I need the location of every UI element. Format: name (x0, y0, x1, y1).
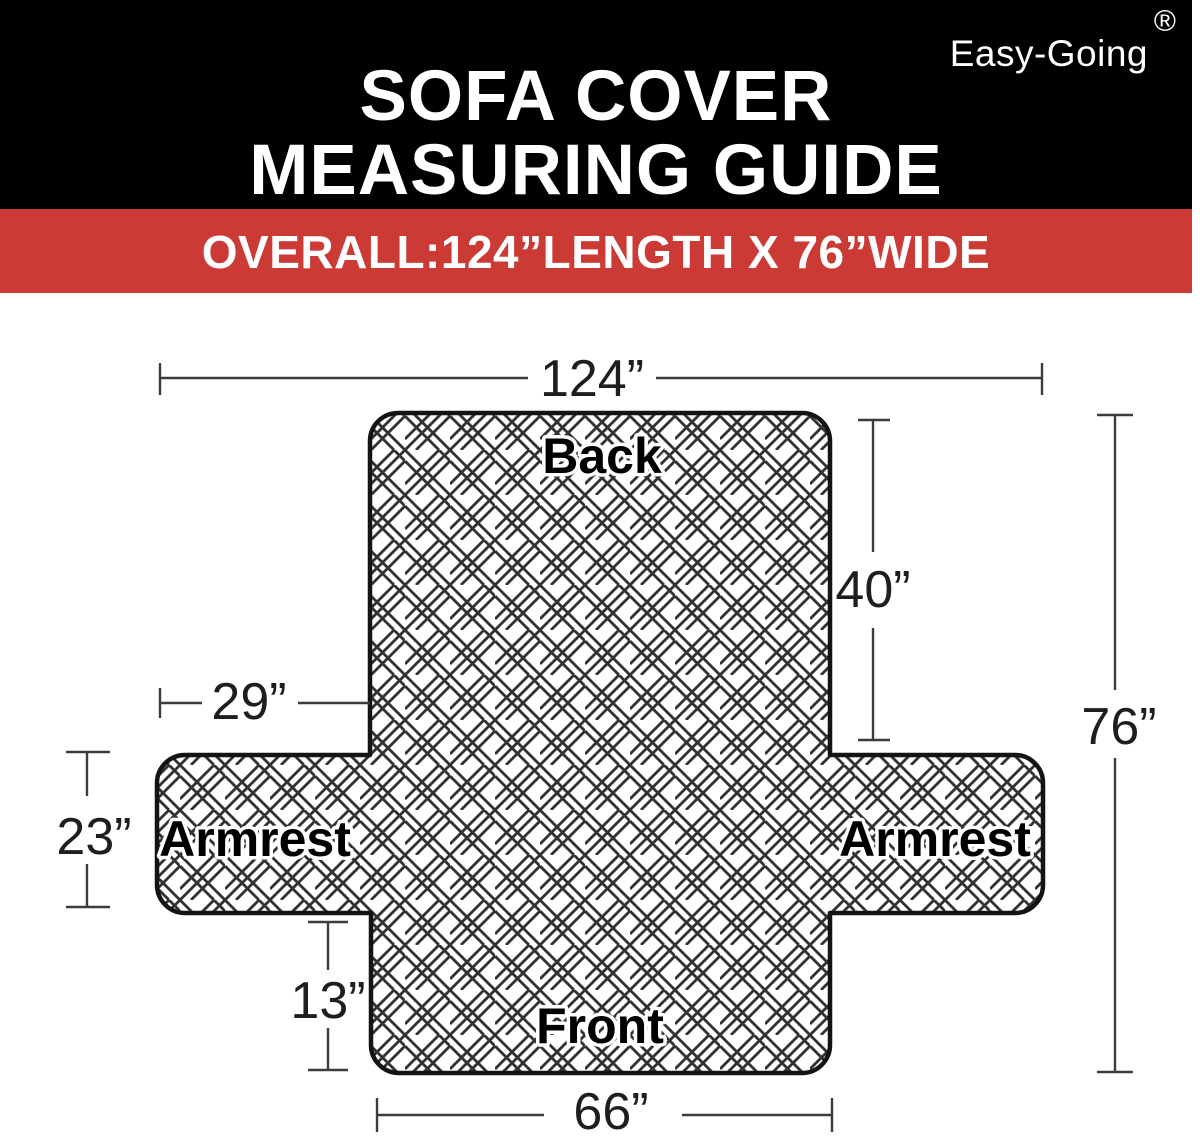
dim-front-skirt-height-value: 13” (290, 972, 365, 1030)
label-back: Back (542, 428, 662, 484)
label-armrest-right: Armrest (839, 811, 1031, 867)
dim-back-height: 40” (835, 420, 910, 740)
dim-overall-width-value: 76” (1081, 698, 1156, 756)
dim-front-width: 66” (377, 1083, 832, 1137)
dim-front-width-value: 66” (573, 1083, 648, 1137)
dim-armrest-height: 23” (56, 752, 131, 907)
label-front: Front (536, 998, 664, 1054)
dim-overall-width: 76” (1081, 415, 1156, 1072)
dim-overall-length-value: 124” (540, 350, 644, 408)
dim-overall-length: 124” (160, 350, 1042, 408)
dim-front-skirt-height: 13” (290, 922, 365, 1070)
dim-back-depth-value: 29” (211, 673, 286, 731)
measuring-guide-page: ® Easy-Going SOFA COVER MEASURING GUIDE … (0, 0, 1200, 1137)
dim-armrest-height-value: 23” (56, 808, 131, 866)
dim-back-height-value: 40” (835, 561, 910, 619)
label-armrest-left: Armrest (159, 811, 351, 867)
sofa-cover-diagram: 124” 29” 23” 40” 76” 13” 6 (0, 0, 1200, 1137)
dim-back-depth: 29” (160, 673, 370, 731)
